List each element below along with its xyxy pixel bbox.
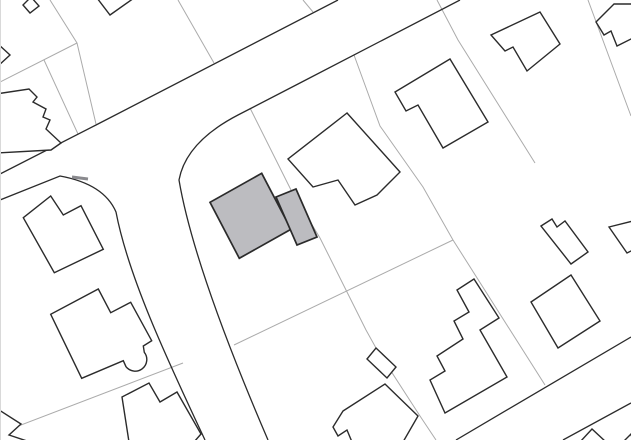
building-top-left-corner [23, 0, 39, 13]
building-bay-house-southwest [51, 289, 152, 378]
building-small-square [367, 348, 396, 378]
parcel-line [234, 240, 453, 345]
parcel-line [178, 0, 214, 63]
parcel-line [50, 0, 96, 124]
building-bottom-left-corner [0, 408, 30, 440]
building-right-bar [541, 219, 588, 264]
building-stepped-south [430, 279, 507, 413]
building-notched-house-west [23, 196, 103, 273]
curb-mark [72, 177, 88, 179]
building-top-right-edge [596, 4, 631, 46]
parcel-line [303, 0, 313, 12]
highlighted-buildings [210, 173, 317, 258]
highlighted-building-main [210, 173, 291, 258]
parcel-line [0, 43, 77, 82]
building-bottom-right-partial [580, 429, 606, 440]
parcel-lines [0, 0, 631, 440]
building-left-stepped [0, 89, 61, 153]
buildings [0, 0, 631, 440]
building-left-edge-small [0, 44, 10, 66]
building-center-north [288, 113, 400, 205]
site-plan-map [0, 0, 631, 440]
building-north-notched [395, 59, 488, 148]
building-corner-southeast [623, 434, 631, 440]
road-edges [0, 0, 631, 440]
building-right-edge [609, 221, 631, 253]
site-plan-stage [0, 0, 631, 440]
building-top-notch [97, 0, 134, 15]
building-diamond-southeast [531, 275, 600, 348]
building-bottom-left [122, 383, 201, 440]
building-top-right [491, 12, 560, 71]
